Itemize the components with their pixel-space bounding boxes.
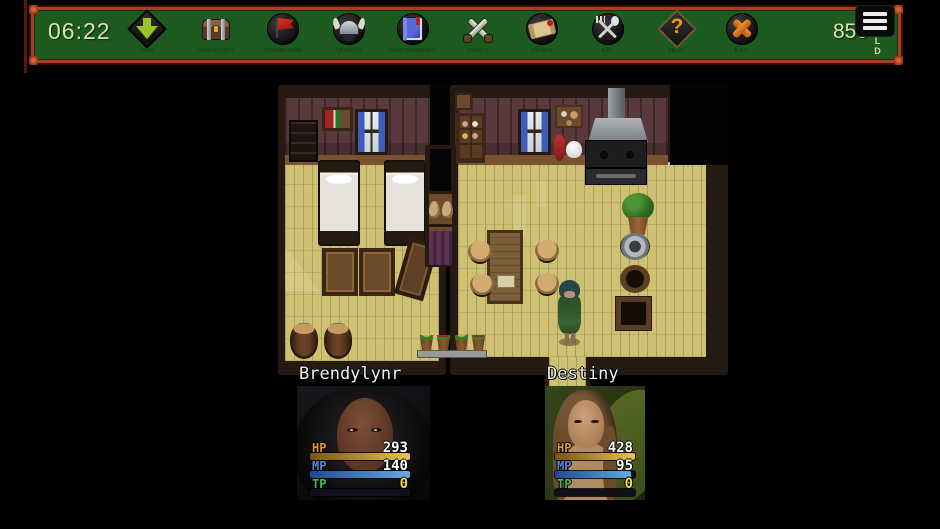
door-opening — [430, 149, 451, 191]
eye-glint — [374, 429, 377, 431]
hamburger-bar — [863, 26, 887, 30]
toolbar-button-help[interactable]: ? HELP — [649, 12, 705, 62]
hamburger-bar — [863, 19, 887, 23]
hanging-jug — [442, 201, 453, 218]
toolbar-corner-ornament — [29, 5, 38, 14]
scroll-seal — [547, 20, 553, 26]
kitchen-cupboard — [455, 113, 485, 163]
purple-curtain — [429, 227, 452, 265]
arrow-head — [136, 26, 158, 39]
eye-glint — [350, 429, 353, 431]
helmet-dome — [339, 20, 359, 35]
small-crate — [455, 93, 472, 110]
basket — [620, 265, 650, 293]
toolbar-button-label: EAT — [580, 48, 636, 54]
light-patch — [536, 181, 546, 207]
toolbar-button-quests[interactable]: QUESTS — [321, 12, 377, 62]
toolbar-button-label: FORMATION — [255, 48, 311, 54]
mp-row: MP 140 — [310, 462, 410, 478]
white-pot — [566, 141, 582, 158]
down-arrow-map-icon — [130, 12, 164, 46]
toolbar-button-label: QUESTS — [321, 48, 377, 54]
spoon-bowl — [611, 16, 619, 26]
chest-strap — [207, 19, 211, 40]
stool — [468, 241, 492, 262]
kitchen-window — [518, 109, 551, 155]
bedroom-room — [278, 85, 446, 375]
counter — [359, 248, 395, 296]
barrel — [290, 323, 318, 359]
hp-value: 428 — [608, 440, 633, 456]
paper-note — [497, 275, 515, 288]
toolbar-button-label: INVENTORY — [188, 48, 244, 54]
wall-shelf — [555, 105, 583, 128]
map-void — [670, 85, 728, 165]
tp-value: 0 — [400, 476, 408, 492]
hp-label: HP — [312, 441, 326, 455]
chest-icon — [199, 12, 233, 46]
hp-value: 293 — [383, 440, 408, 456]
stool — [470, 274, 494, 295]
toolbar-button-skills[interactable]: SKILLS — [514, 12, 570, 62]
mp-row: MP 95 — [555, 462, 635, 478]
portrait-eye — [574, 420, 582, 423]
blue-book-icon — [396, 12, 430, 46]
question-mark-icon: ? — [660, 12, 694, 46]
bed — [318, 160, 360, 246]
dresser — [289, 120, 318, 162]
kitchen-room — [450, 85, 728, 375]
toolbar-corner-ornament — [894, 56, 903, 65]
toolbar-button-map[interactable]: MAP — [119, 12, 175, 62]
red-jar — [554, 135, 565, 161]
character-name: Brendylynr — [299, 364, 401, 384]
toolbar-button-craft[interactable]: CRAFT — [450, 12, 506, 62]
helmet-face — [343, 34, 355, 41]
hamburger-menu-button[interactable] — [856, 6, 894, 36]
game-screen: 06:22 MAP INVENTORY FO — [0, 0, 940, 529]
toolbar-corner-ornament — [894, 5, 903, 14]
book-bookmark — [416, 17, 420, 25]
helmet-icon — [332, 12, 366, 46]
mp-value: 95 — [616, 458, 633, 474]
interior-doorway — [425, 145, 456, 267]
bedroom-window — [355, 109, 388, 155]
toolbar-button-photolibrary[interactable]: PHOTOLIBRARY — [385, 12, 441, 62]
toolbar-button-label: CRAFT — [450, 48, 506, 54]
red-flag-icon — [266, 12, 300, 46]
metal-pan — [620, 233, 650, 260]
mp-value: 140 — [383, 458, 408, 474]
character-leg — [571, 333, 575, 343]
crossed-daggers-icon — [461, 12, 495, 46]
party-member-panel: Destiny HP 428 MP 95 — [545, 366, 645, 506]
toolbar-button-formation[interactable]: FORMATION — [255, 12, 311, 62]
toolbar-button-label: PHOTOLIBRARY — [385, 48, 441, 54]
portrait-eye — [591, 420, 599, 423]
character-dress — [558, 296, 581, 334]
chest-lock — [213, 25, 219, 33]
mp-label: MP — [312, 459, 326, 473]
character-face — [564, 291, 575, 298]
game-clock: 06:22 — [48, 18, 111, 45]
stool — [535, 240, 559, 261]
stove-cooktop — [585, 140, 647, 168]
chest-strap — [221, 19, 225, 40]
player-character-sprite — [557, 280, 582, 348]
bookshelf — [322, 107, 353, 131]
book-body — [403, 17, 423, 41]
portrait-face — [568, 400, 604, 448]
question-glyph: ? — [660, 15, 694, 39]
toolbar-button-label: MAP — [119, 48, 175, 54]
tp-row: TP 0 — [310, 480, 410, 496]
stove-hood — [588, 118, 648, 142]
hanging-jug — [429, 201, 440, 218]
screen-edge-decoration — [24, 0, 27, 73]
game-map[interactable] — [278, 85, 728, 375]
bed — [384, 160, 426, 246]
character-name: Destiny — [547, 364, 619, 384]
character-leg — [565, 333, 569, 343]
dagger-hilt — [485, 35, 492, 42]
tp-row: TP 0 — [555, 480, 635, 496]
character-shadow — [559, 338, 580, 346]
counter — [322, 248, 358, 296]
scroll-icon — [525, 12, 559, 46]
dining-table — [487, 230, 523, 304]
toolbar-button-inventory[interactable]: INVENTORY — [188, 12, 244, 62]
toolbar-button-label: EXIT — [714, 48, 770, 54]
tp-label: TP — [312, 477, 326, 491]
toolbar-button-eat[interactable]: EAT — [580, 12, 636, 62]
x-close-icon — [725, 12, 759, 46]
toolbar-button-label: HELP — [649, 48, 705, 54]
game-toolbar: 06:22 MAP INVENTORY FO — [31, 7, 901, 63]
hp-label: HP — [557, 441, 571, 455]
flower-tray — [417, 350, 487, 358]
potted-plant-bush — [622, 193, 654, 221]
toolbar-button-exit[interactable]: EXIT — [714, 12, 770, 62]
open-crate — [616, 297, 651, 330]
toolbar-corner-ornament — [29, 56, 38, 65]
tp-value: 0 — [625, 476, 633, 492]
mp-label: MP — [557, 459, 571, 473]
flag-pole — [276, 18, 278, 38]
tp-label: TP — [557, 477, 571, 491]
hamburger-bar — [863, 12, 887, 16]
party-member-panel: Brendylynr HP 293 MP 140 — [297, 366, 430, 506]
stool — [535, 273, 559, 294]
stove-chimney — [608, 88, 625, 120]
fork-spoon-icon — [591, 12, 625, 46]
oven-handle — [596, 174, 636, 178]
barrel — [324, 323, 352, 359]
toolbar-button-label: SKILLS — [514, 48, 570, 54]
map-void — [430, 85, 450, 151]
dagger-hilt — [464, 35, 471, 42]
